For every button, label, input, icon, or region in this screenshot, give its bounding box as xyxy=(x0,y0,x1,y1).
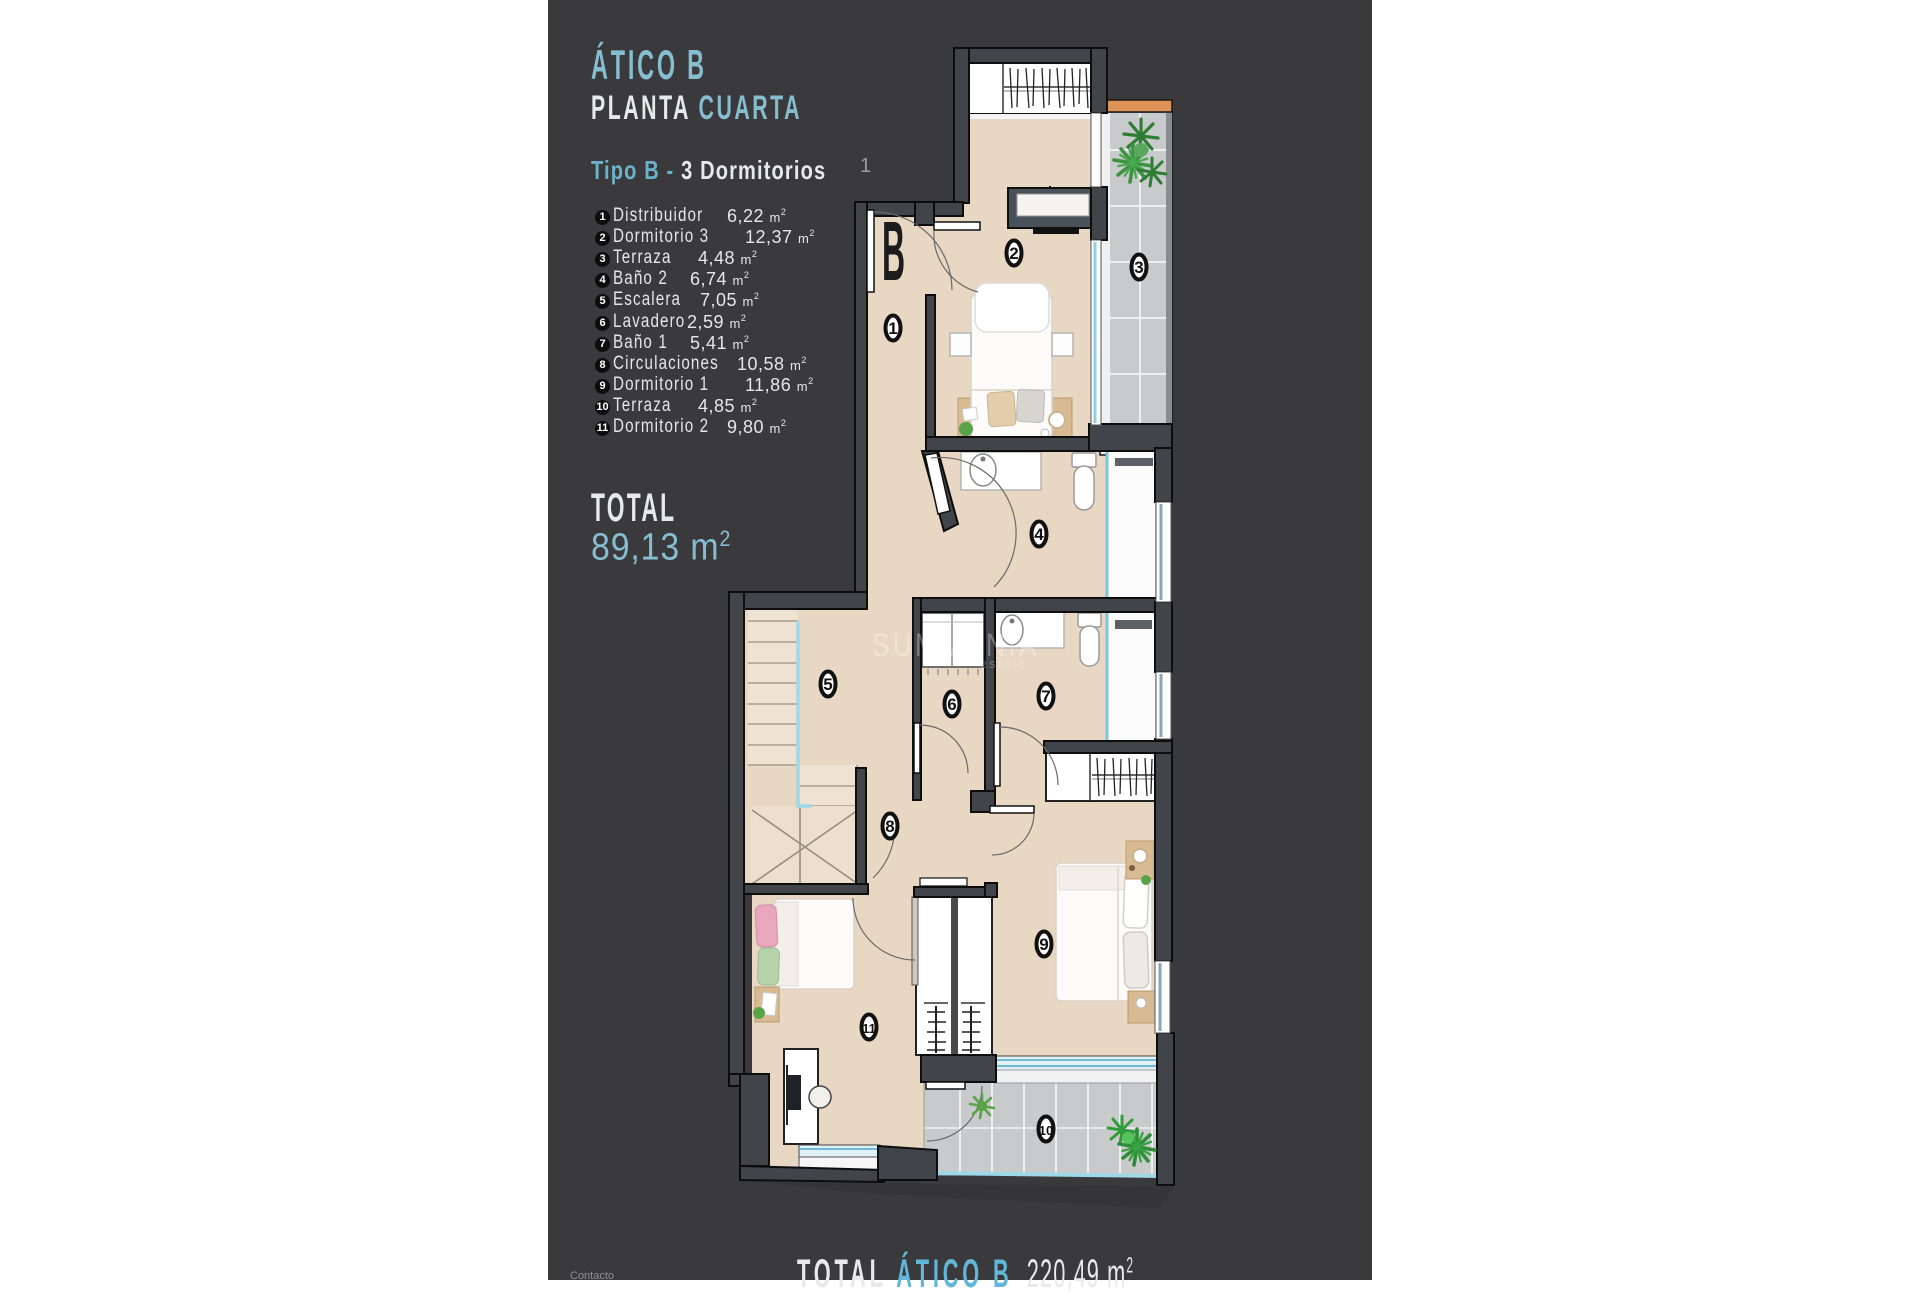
svg-text:3: 3 xyxy=(1134,258,1143,277)
svg-text:10: 10 xyxy=(1039,1123,1053,1138)
svg-text:9: 9 xyxy=(1039,935,1048,954)
svg-text:7: 7 xyxy=(1041,687,1050,706)
svg-text:estate: estate xyxy=(980,656,1027,671)
svg-text:1: 1 xyxy=(860,155,871,177)
svg-text:1: 1 xyxy=(888,319,897,338)
svg-text:6: 6 xyxy=(947,695,956,714)
svg-text:11: 11 xyxy=(862,1021,876,1036)
svg-text:2: 2 xyxy=(1009,244,1018,263)
svg-text:8: 8 xyxy=(885,817,894,836)
svg-text:4: 4 xyxy=(1034,525,1044,544)
svg-text:5: 5 xyxy=(823,675,832,694)
svg-text:B: B xyxy=(882,205,905,299)
